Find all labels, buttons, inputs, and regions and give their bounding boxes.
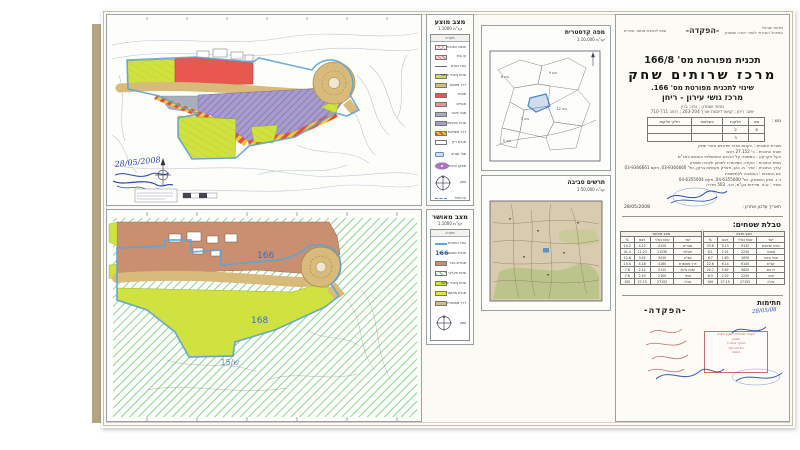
plan-name-title: מרכז שרותים שחק (626, 68, 779, 83)
plan-details: מטרת התכנית : הקמת מרכז שרותים אזורי שחק… (624, 143, 781, 188)
legend-swatch-combined-road (435, 131, 447, 136)
last-update-date: 28/05/2008 (624, 205, 650, 210)
env-scale: קנ"מ 1:50,000 (577, 187, 605, 192)
legend-item-label: מגרש ריק (452, 140, 466, 144)
cadastral-scale: קנ"מ 1:10,000 (577, 37, 605, 42)
cadastral-panel: מפה קדסטרית קנ"מ 1:10,000 גוש 8 (481, 25, 611, 171)
proposed-legend-scale: קנ"מ 1:1000 (427, 26, 473, 31)
legend-item: קו בנין (433, 53, 467, 62)
legend-header: מקרא (431, 230, 469, 237)
legend-item: שטח חקלאי (433, 269, 467, 278)
legend-item: מגרש ריק (433, 138, 467, 147)
divider (622, 216, 783, 217)
legend-item-label: מרכז שרותים (447, 121, 466, 125)
approved-map-panel: 166 168 ש/15 (106, 209, 422, 422)
legend-item: שטח ציבורי פתוח (433, 279, 467, 288)
approved-map-svg: 166 168 ש/15 (107, 210, 423, 423)
legend-swatch-road (435, 83, 447, 88)
proposed-map-svg: 28/05/2008 (107, 15, 423, 207)
legend-item: דרך משולבת (433, 129, 467, 138)
approved-legend-scale: קנ"מ 1:1000 (427, 221, 473, 226)
legend-symbol-compass: צפון (433, 174, 467, 192)
parcels-table: גושחלקותבשלמותחלקי חלקות 823 (647, 117, 765, 142)
legend-symbol-dash: קו כחול (433, 194, 467, 203)
svg-text:גוש 8: גוש 8 (501, 75, 510, 79)
compass-icon (434, 174, 452, 192)
legend-swatch-empty-lot (435, 140, 447, 145)
legend-item: דרך מוצעת (433, 81, 467, 90)
legend-item-label: מתקן הנדסי (449, 164, 466, 168)
legend-swatch-road (435, 301, 447, 306)
coords-line: ישוב: ריחן ; קואורדינטות אורך 203-204 ; … (626, 109, 779, 114)
label-outer-plan: ש/15 (220, 358, 239, 367)
lot-number-chip-icon (435, 152, 444, 157)
legend-item-label: דרך מאושרת (447, 301, 466, 305)
plan-sheet: 28/05/2008 (101, 9, 795, 428)
zone-public-open-bottom (178, 116, 236, 159)
legend-swatch-agri (435, 271, 447, 276)
scanned-plan-sheet: 28/05/2008 (0, 0, 800, 450)
legend-swatch-services (435, 121, 447, 126)
approved-legend-box: מקרא גבול התכנית 166תכנית מאושרת מס' מגו… (430, 229, 470, 341)
legend-item: מגורים כפר (433, 259, 467, 268)
legend-symbol-compass: צפון (433, 314, 467, 336)
legend-swatch-building-line (435, 55, 447, 60)
signature-scribble2 (113, 181, 173, 186)
locality-line: מרכז גושי עירון - ריחן (626, 93, 779, 102)
amendment-line: שינוי לתכנית מפורטת מס' 166. (626, 84, 779, 92)
legend-item-label: צפון (460, 321, 466, 325)
legend-item: מבני ציבור (433, 110, 467, 119)
legend-swatch-lot (435, 291, 447, 296)
legend-swatch-boundary (435, 243, 447, 245)
areas-table-proposed: מצב מוצע יעודשטח במ"רדונם%מרכז שרותים913… (703, 231, 785, 285)
parcels-label: גוש : (772, 119, 781, 124)
map-notes (135, 189, 217, 202)
legend-item-label: שטח ציבורי פתוח (441, 73, 466, 77)
areas-table-title: טבלת שטחים: (733, 220, 781, 229)
legend-item-label: גבול מגרש (451, 64, 466, 68)
legend-swatch-residential (435, 102, 447, 107)
legend-swatch-lot-line (435, 66, 447, 67)
dashed-line-icon (435, 198, 447, 199)
proposed-legend-panel: מצב מוצע קנ"מ 1:1000 מקרא תחום התכנית קו… (426, 14, 474, 206)
legend-item-label: גבול התכנית (448, 241, 466, 245)
env-plan-location-marker (543, 248, 549, 253)
legend-item-label: דרך משולבת (448, 130, 466, 134)
legend-item-label: מגורים כפר (450, 261, 466, 265)
handwritten-signature-date: 28/05/08 (752, 307, 777, 315)
last-update-label: תאריך עדכון אחרון : (742, 205, 781, 210)
legend-item-label: מגורים (456, 102, 466, 106)
env-title: תרשים סביבה (567, 179, 605, 186)
title-block: שינוי לתכנית מתאר אזורית -הפקדה- מדינת י… (615, 14, 790, 422)
legend-item: מסחר (433, 91, 467, 100)
env-map-svg (489, 200, 603, 304)
legend-item: 166תכנית מאושרת מס' (433, 249, 467, 258)
legend-item-label: תחום התכנית (447, 45, 466, 49)
legend-item-label: מבני ציבור (451, 111, 466, 115)
legend-item-label: צפון (460, 180, 466, 184)
legend-item: שטח ציבורי פתוח (433, 72, 467, 81)
legend-header: מקרא (431, 35, 469, 42)
cadastral-title: מפה קדסטרית (565, 29, 605, 36)
legend-item: מרכז שרותים (433, 119, 467, 128)
legend-swatch-commercial (435, 93, 447, 98)
legend-swatch-brown (435, 261, 447, 266)
roundabout-island (329, 78, 340, 89)
zone-public-open-small (251, 125, 278, 143)
approved-legend-panel: מצב מאושר קנ"מ 1:1000 מקרא גבול התכנית 1… (426, 209, 474, 345)
svg-text:גוש 5: גוש 5 (503, 139, 512, 143)
blue-stamp-scribble (661, 183, 731, 209)
legend-item: מגורים (433, 100, 467, 109)
legend-item: מגרש מאושר (433, 289, 467, 298)
legend-item-label: מס' מגרש (451, 152, 466, 156)
proposed-legend-title: מצב מוצע (427, 18, 473, 26)
legend-item-label: שטח ציבורי פתוח (441, 281, 466, 285)
compass-icon (435, 314, 453, 332)
legend-item-label: מסחר (457, 92, 466, 96)
handwritten-ink: 28/05/2008 (113, 155, 173, 190)
svg-text:גוש 3: גוש 3 (521, 117, 530, 121)
legend-item: דרך מאושרת (433, 299, 467, 308)
approved-roundabout-island (316, 262, 326, 272)
header-right-line2: המינהל האזרחי לאזור יהודה ושומרון (725, 30, 783, 35)
legend-item-label: שטח חקלאי (449, 271, 466, 275)
legend-item-label: מגרש מאושר (447, 291, 466, 295)
svg-text:גוש 9: גוש 9 (549, 71, 558, 75)
approved-legend-title: מצב מאושר (427, 213, 473, 221)
lime-sliver-topleft (109, 222, 117, 246)
svg-text:גוש 12: גוש 12 (557, 107, 568, 111)
legend-symbol-ellipse: מתקן הנדסי (433, 161, 467, 172)
legend-item: תחום התכנית (433, 43, 467, 52)
env-panel: תרשים סביבה קנ"מ 1:50,000 (481, 175, 611, 311)
legend-symbol-chip: מס' מגרש (433, 150, 467, 159)
signature-scribbles (636, 315, 786, 395)
legend-item: גבול התכנית (433, 239, 467, 248)
label-168: 168 (251, 316, 268, 326)
legend-item-label: תכנית מאושרת מס' (438, 251, 466, 255)
legend-swatch-plan-extent (435, 45, 447, 50)
legend-item-label: קו בנין (457, 54, 466, 58)
ellipse-symbol-icon (434, 161, 450, 171)
legend-swatch-public-bldg (435, 112, 447, 117)
frame-ticks (147, 17, 387, 20)
signatures-header: חתימות (757, 299, 781, 307)
proposed-map-panel: 28/05/2008 (106, 14, 422, 206)
proposed-legend-box: מקרא תחום התכנית קו בנין גבול מגרש שטח צ… (430, 34, 470, 201)
divider (622, 295, 783, 296)
areas-table-approved: מצב מאושר יעודשטח במ"רדונם%מגורים41204.1… (620, 231, 702, 285)
legend-item-label: דרך מוצעת (450, 83, 466, 87)
plan-number-title: תכנית מפורטת מס' 166/8 (626, 55, 779, 66)
legend-item-label: קו כחול (455, 196, 466, 200)
legend-item: גבול מגרש (433, 62, 467, 71)
cadastral-map-svg: גוש 8 גוש 9 גוש 3 גוש 12 גוש 5 (489, 48, 603, 164)
label-166: 166 (257, 251, 274, 261)
handwritten-date: 28/05/2008 (113, 155, 161, 169)
